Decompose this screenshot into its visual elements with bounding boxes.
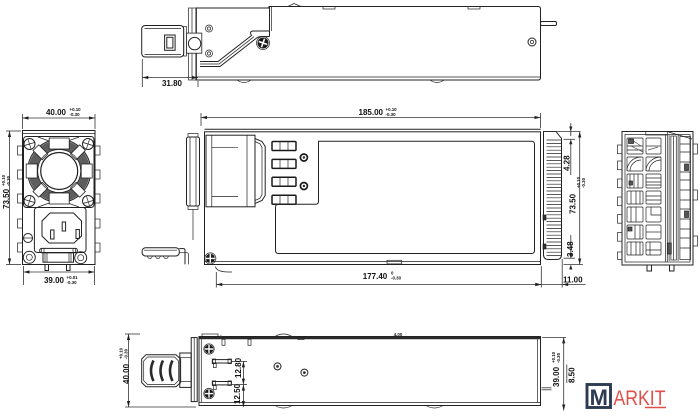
svg-text:39.00: 39.00: [44, 276, 65, 285]
svg-text:12.80: 12.80: [234, 357, 243, 378]
svg-text:39.00: 39.00: [552, 366, 561, 387]
svg-text:8.50: 8.50: [568, 367, 577, 383]
svg-text:-0.30: -0.30: [70, 112, 81, 117]
svg-text:-0.30: -0.30: [556, 352, 561, 363]
svg-text:-0.30: -0.30: [67, 280, 78, 285]
svg-text:3.48: 3.48: [566, 241, 575, 257]
svg-text:M: M: [590, 385, 608, 410]
svg-text:4.00: 4.00: [394, 332, 403, 337]
svg-text:-0.30: -0.30: [391, 276, 402, 281]
svg-text:-0.30: -0.30: [124, 348, 129, 359]
svg-text:185.00: 185.00: [359, 108, 384, 117]
svg-text:40.00: 40.00: [122, 363, 131, 384]
svg-text:11.00: 11.00: [563, 276, 583, 285]
svg-text:-0.30: -0.30: [581, 177, 586, 188]
svg-text:73.50: 73.50: [2, 188, 11, 209]
svg-text:73.50: 73.50: [569, 193, 578, 214]
svg-text:-0.30: -0.30: [386, 112, 397, 117]
svg-text:12.50: 12.50: [233, 383, 242, 404]
svg-text:-0.30: -0.30: [6, 175, 11, 186]
svg-text:31.80: 31.80: [162, 79, 183, 88]
svg-text:ARKIT: ARKIT: [614, 387, 666, 410]
svg-text:40.00: 40.00: [46, 108, 67, 117]
svg-text:4.28: 4.28: [563, 155, 572, 171]
svg-text:177.40: 177.40: [363, 272, 388, 281]
